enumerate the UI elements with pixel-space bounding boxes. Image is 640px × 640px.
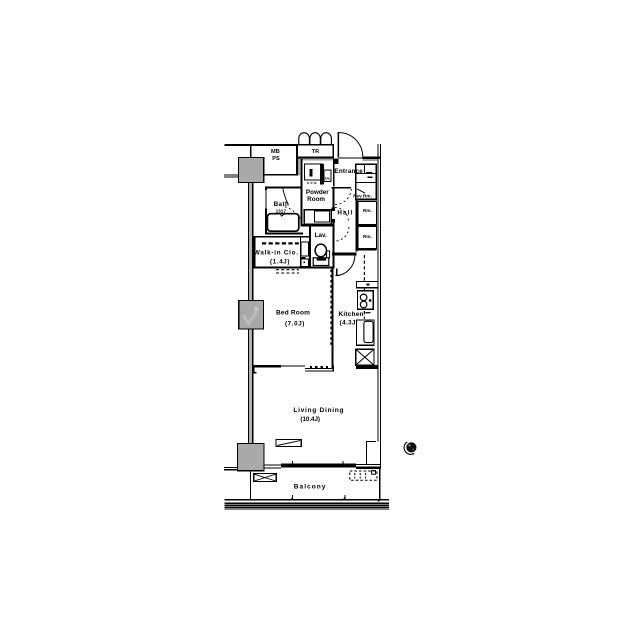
svg-text:(4.3J): (4.3J) — [340, 320, 359, 327]
svg-text:Rev Rm.: Rev Rm. — [353, 193, 372, 198]
svg-text:Rm.: Rm. — [363, 234, 372, 239]
svg-text:1317: 1317 — [276, 208, 287, 213]
svg-text:Bed Room: Bed Room — [276, 310, 310, 317]
svg-text:Walk-in Clo.: Walk-in Clo. — [254, 250, 299, 257]
svg-text:Rm.: Rm. — [363, 208, 372, 213]
svg-text:Lav.: Lav. — [315, 232, 327, 239]
svg-text:MB: MB — [271, 149, 280, 155]
svg-text:Kitchen: Kitchen — [338, 311, 363, 318]
svg-text:(1.4J): (1.4J) — [270, 258, 290, 265]
svg-text:(7.0J): (7.0J) — [285, 320, 305, 327]
svg-text:(10.4J): (10.4J) — [300, 416, 320, 423]
svg-text:Entrance: Entrance — [334, 168, 363, 175]
svg-text:Living Dining: Living Dining — [293, 407, 344, 414]
svg-text:Ua.: Ua. — [325, 176, 331, 180]
svg-text:Hall: Hall — [337, 210, 353, 217]
svg-text:Room: Room — [307, 196, 325, 203]
svg-text:PS: PS — [272, 156, 280, 162]
svg-text:TR: TR — [312, 149, 319, 155]
svg-text:Balcony: Balcony — [294, 483, 327, 490]
